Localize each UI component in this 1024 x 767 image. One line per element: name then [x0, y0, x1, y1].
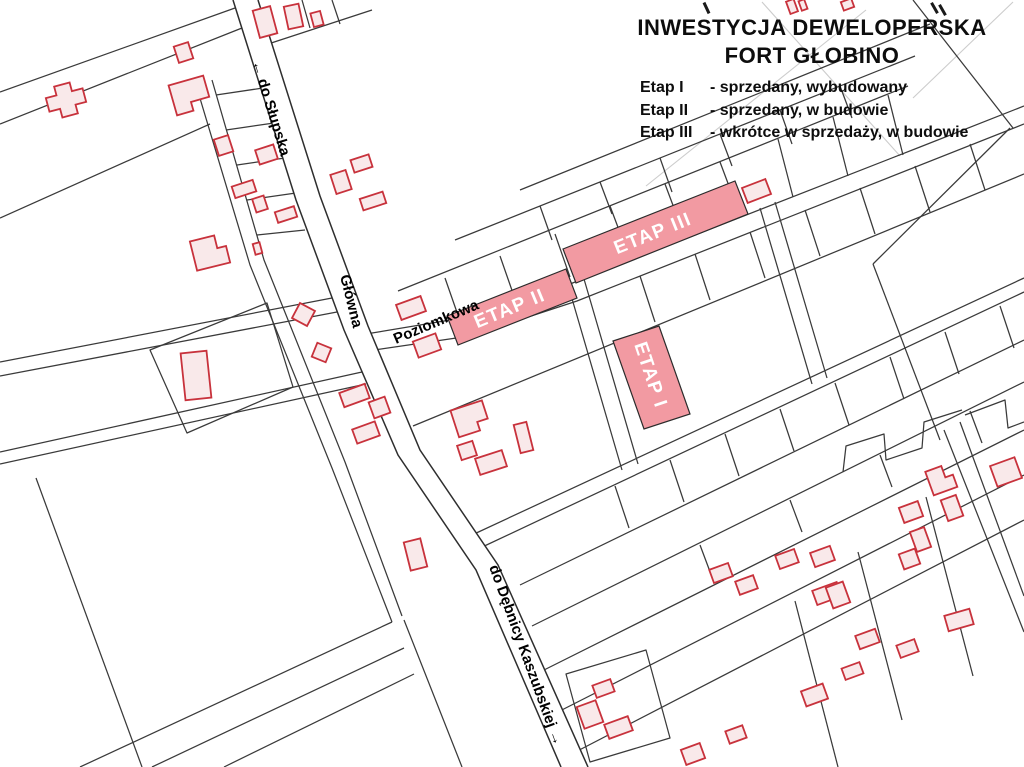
building [899, 501, 923, 523]
building [181, 351, 212, 400]
building [450, 400, 490, 437]
legend-desc-etap1: - sprzedany, wybudowany [710, 77, 1024, 99]
building [352, 421, 380, 443]
title-block: INWESTYCJA DEWELOPERSKA FORT GŁOBINO Eta… [600, 14, 1024, 144]
building [232, 180, 257, 198]
building [330, 170, 351, 194]
building [944, 609, 973, 632]
building [592, 679, 614, 698]
building [735, 575, 758, 595]
building [842, 662, 864, 680]
building [169, 76, 212, 116]
building [709, 563, 733, 583]
building [312, 343, 332, 363]
building [190, 233, 230, 270]
building [826, 582, 850, 609]
building [457, 441, 477, 460]
legend-desc-etap3: - wkrótce w sprzedaży, w budowie [710, 122, 1024, 144]
building [310, 11, 323, 27]
building [725, 725, 746, 743]
building [339, 384, 370, 407]
legend-desc-etap2: - sprzedany, w budowie [710, 100, 1024, 122]
building [941, 495, 964, 521]
building [925, 463, 957, 495]
building [253, 242, 263, 254]
legend-label-etap2: Etap II [640, 100, 706, 122]
legend-label-etap1: Etap I [640, 77, 706, 99]
plot-map-page: ← do Słupska Główna Poziomkowa do Dębnic… [0, 0, 1024, 767]
building [990, 457, 1022, 487]
building [404, 538, 428, 570]
building [44, 80, 89, 121]
building [855, 629, 880, 649]
building [801, 684, 828, 707]
building [514, 422, 534, 453]
street-label-debnicy: do Dębnicy Kaszubskiej → [485, 563, 566, 748]
legend-label-etap3: Etap III [640, 122, 706, 144]
building [681, 743, 705, 765]
building [810, 546, 835, 567]
building [275, 206, 297, 223]
building [604, 716, 633, 739]
building [577, 700, 604, 728]
building [252, 195, 268, 212]
building [174, 42, 194, 63]
page-title-line1: INWESTYCJA DEWELOPERSKA [600, 14, 1024, 42]
building [350, 154, 372, 172]
building [786, 0, 798, 14]
building [896, 639, 918, 658]
building [798, 0, 807, 11]
building [910, 527, 931, 552]
building [742, 179, 771, 203]
building [396, 296, 426, 320]
building [284, 4, 303, 30]
legend: Etap I - sprzedany, wybudowany Etap II -… [600, 77, 1024, 144]
building [292, 303, 315, 326]
building [360, 192, 387, 211]
building [841, 0, 854, 11]
building [475, 450, 507, 475]
page-title-line2: FORT GŁOBINO [600, 42, 1024, 70]
